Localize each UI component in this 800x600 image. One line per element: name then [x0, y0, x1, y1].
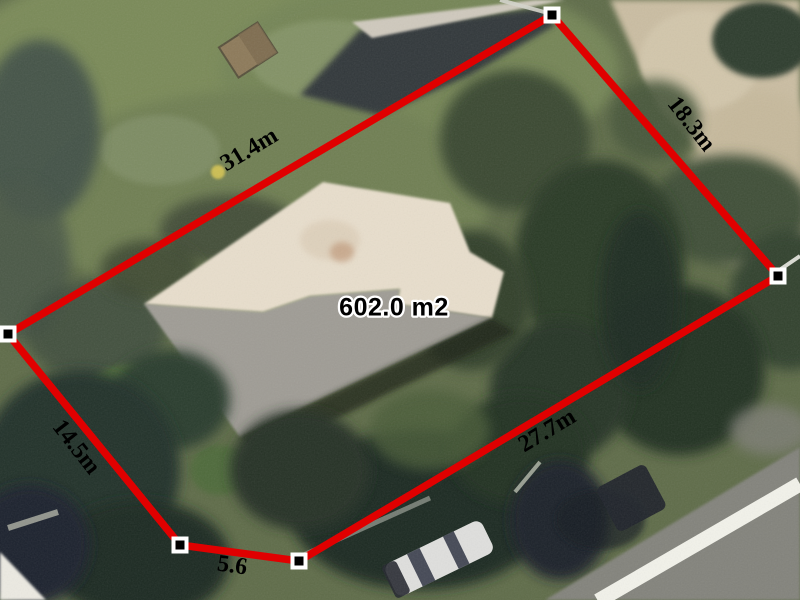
vertex-marker-bottom-left[interactable]: [172, 537, 189, 554]
vertex-marker-top[interactable]: [544, 7, 561, 24]
vertex-marker-right[interactable]: [770, 268, 787, 285]
vertex-marker-left[interactable]: [0, 326, 17, 343]
aerial-measurement-canvas[interactable]: 31.4m 18.3m 27.7m 14.5m 5.6 602.0 m2: [0, 0, 800, 600]
edge-label-bottom-front: 5.6: [216, 551, 249, 581]
area-label: 602.0 m2: [339, 294, 449, 322]
vertex-marker-bottom-right[interactable]: [291, 553, 308, 570]
